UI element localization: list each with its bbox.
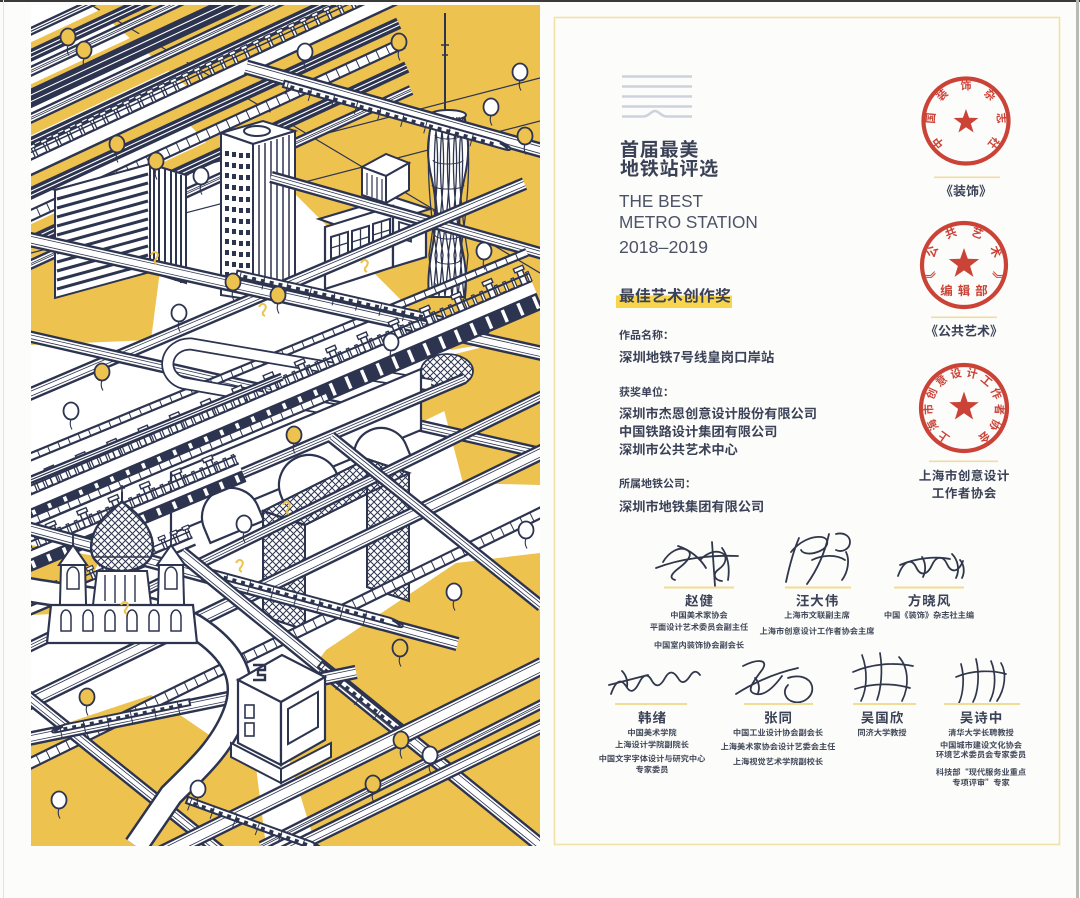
svg-text:2018–2019: 2018–2019 <box>619 237 708 257</box>
svg-text:THE BEST: THE BEST <box>619 191 704 211</box>
svg-text:METRO STATION: METRO STATION <box>619 212 758 232</box>
